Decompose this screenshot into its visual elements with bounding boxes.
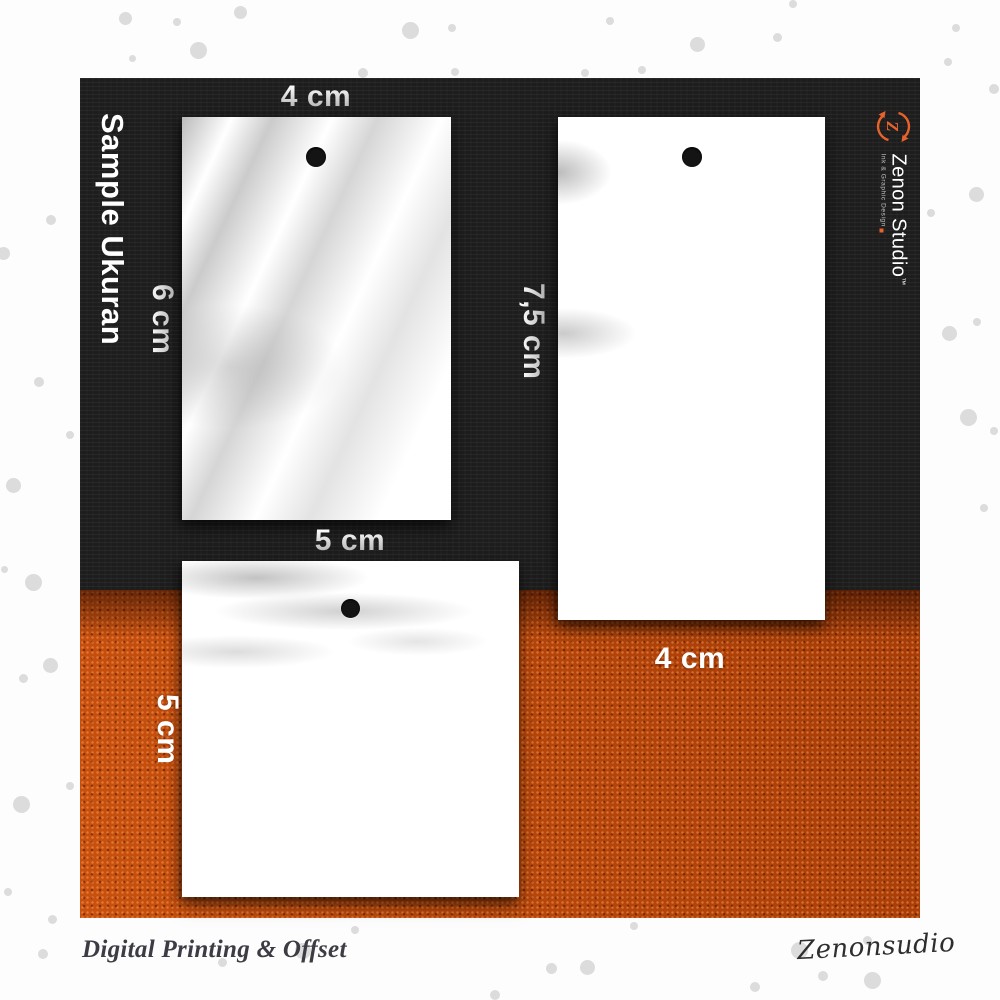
size-label-height-7-5cm: 7,5 cm (516, 283, 550, 379)
brand-logo-block: Z Zenon Studio™ Ink & Graphic Design (875, 108, 913, 283)
leaf-shadow-overlay (558, 117, 825, 620)
decor-dot (351, 926, 359, 934)
decor-dot (490, 990, 500, 1000)
decor-dot (358, 68, 368, 78)
decor-dot (990, 427, 998, 435)
decor-dot (43, 658, 58, 673)
decor-dot (119, 12, 132, 25)
svg-text:Z: Z (883, 120, 902, 131)
size-label-height-6cm: 6 cm (145, 284, 179, 354)
decor-dot (630, 922, 638, 930)
decor-dot (13, 796, 30, 813)
decor-dot (773, 33, 782, 42)
decor-dot (690, 37, 705, 52)
decor-dot (1, 566, 8, 573)
decor-dot (46, 215, 56, 225)
decor-dot (451, 68, 459, 76)
tag-punch-hole (306, 147, 326, 167)
decor-dot (973, 318, 981, 326)
size-label-width-4cm: 4 cm (266, 80, 366, 114)
decor-dot (234, 6, 247, 19)
decor-dot (580, 960, 595, 975)
decor-dot (173, 18, 181, 26)
decor-dot (638, 66, 646, 74)
decor-dot (750, 982, 760, 992)
decor-dot (190, 42, 207, 59)
brand-tagline: Ink & Graphic Design (879, 154, 886, 286)
hang-tag-4x6 (182, 117, 451, 520)
decor-dot (581, 69, 589, 77)
decor-dot (38, 949, 48, 959)
decor-dot (944, 58, 952, 66)
decor-dot (980, 504, 988, 512)
decor-dot (402, 22, 419, 39)
tag-punch-hole (341, 599, 360, 618)
decor-dot (448, 24, 456, 32)
tag-punch-hole (682, 147, 702, 167)
decor-dot (952, 24, 960, 32)
page-title: Sample Ukuran (94, 113, 130, 345)
size-label-width-4cm-bottom: 4 cm (640, 642, 740, 676)
decor-dot (48, 915, 57, 924)
decor-dot (969, 187, 984, 202)
trademark-mark: ™ (898, 277, 907, 285)
decor-dot (66, 782, 74, 790)
decor-dot (25, 574, 42, 591)
size-label-height-5cm: 5 cm (150, 694, 184, 764)
decor-dot (864, 972, 881, 989)
leaf-shadow-overlay (182, 117, 451, 520)
orange-square-mark (880, 229, 884, 233)
hang-tag-5x5 (182, 561, 519, 897)
decor-dot (34, 377, 44, 387)
footer-service-text: Digital Printing & Offset (82, 936, 347, 964)
brand-text: Zenon Studio™ Ink & Graphic Design (879, 154, 909, 286)
hang-tag-4x7-5 (558, 117, 825, 620)
brand-name: Zenon Studio™ (888, 154, 908, 286)
decor-dot (942, 326, 957, 341)
decor-dot (19, 674, 28, 683)
decor-dot (4, 888, 12, 896)
decor-dot (789, 0, 797, 8)
decor-dot (989, 84, 999, 94)
decor-dot (818, 971, 828, 981)
decor-dot (6, 478, 21, 493)
decor-dot (66, 431, 74, 439)
decor-dot (546, 963, 557, 974)
decor-dot (960, 409, 977, 426)
decor-dot (927, 209, 935, 217)
decor-dot (129, 55, 136, 62)
decor-dot (0, 247, 10, 260)
product-mockup-scene: Sample Ukuran 4 cm 6 cm 7,5 cm 5 cm 5 cm… (0, 0, 1000, 1000)
zenon-z-circle-icon: Z (875, 108, 913, 146)
size-label-width-5cm: 5 cm (300, 524, 400, 558)
decor-dot (606, 17, 614, 25)
